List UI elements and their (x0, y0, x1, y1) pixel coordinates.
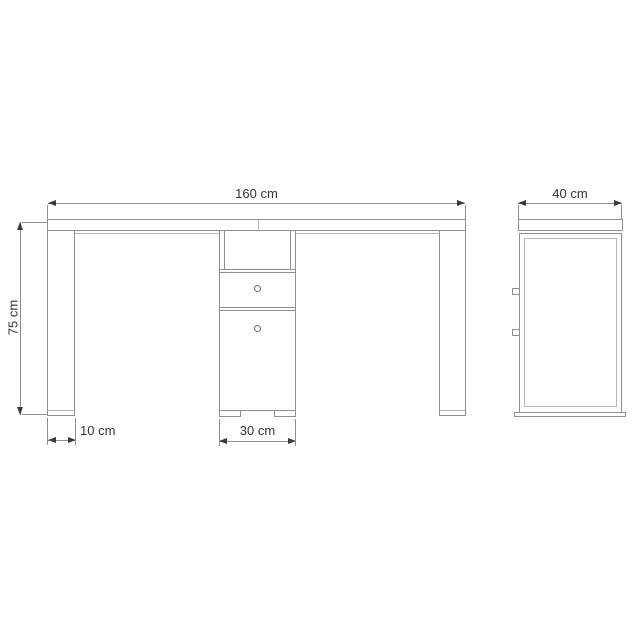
dim-width-label: 160 cm (48, 186, 465, 201)
mounting-clip (512, 329, 520, 336)
dimension-drawing: 160 cm 75 cm 10 (0, 0, 636, 636)
arrow-right-icon (457, 200, 465, 206)
dim-depth-line (518, 203, 622, 204)
dim-height-label: 75 cm (6, 297, 21, 339)
arrow-up-icon (17, 222, 23, 230)
door-top-line (219, 310, 296, 311)
extension-line (47, 205, 48, 219)
dim-depth-label: 40 cm (518, 186, 622, 201)
niche-side-panel (290, 231, 291, 269)
side-panel-inner (524, 238, 617, 407)
drawer-unit-foot (274, 410, 296, 417)
niche-side-panel (224, 231, 225, 269)
arrow-left-icon (518, 200, 526, 206)
arrow-left-icon (48, 437, 56, 443)
arrow-left-icon (219, 438, 227, 444)
mounting-clip (512, 288, 520, 295)
drawer-knob (254, 285, 261, 292)
drawer-bottom-line (219, 307, 296, 308)
extension-line (22, 414, 47, 415)
left-leg (47, 230, 75, 416)
extension-line (47, 418, 48, 445)
extension-line (465, 205, 466, 219)
dim-leg-label: 10 cm (80, 423, 115, 438)
arrow-left-icon (48, 200, 56, 206)
extension-line (219, 419, 220, 446)
left-leg-foot-line (48, 410, 74, 411)
dim-cabinet-line (219, 441, 296, 442)
door-knob (254, 325, 261, 332)
right-leg (439, 230, 466, 416)
dim-cabinet-label: 30 cm (219, 423, 296, 438)
extension-line (621, 205, 622, 219)
desk-top-seam (258, 220, 259, 230)
extension-line (518, 205, 519, 219)
extension-line (75, 418, 76, 445)
extension-line (22, 222, 47, 223)
niche-shelf-line (219, 272, 296, 273)
side-desk-top (518, 219, 623, 231)
dim-width-line (48, 203, 465, 204)
niche-shelf-line (219, 269, 296, 270)
drawer-unit-foot (219, 410, 241, 417)
right-leg-foot-line (440, 410, 465, 411)
extension-line (295, 419, 296, 446)
dim-height-line (20, 222, 21, 415)
drawer-unit (219, 230, 296, 411)
side-bottom-rail (514, 412, 626, 417)
